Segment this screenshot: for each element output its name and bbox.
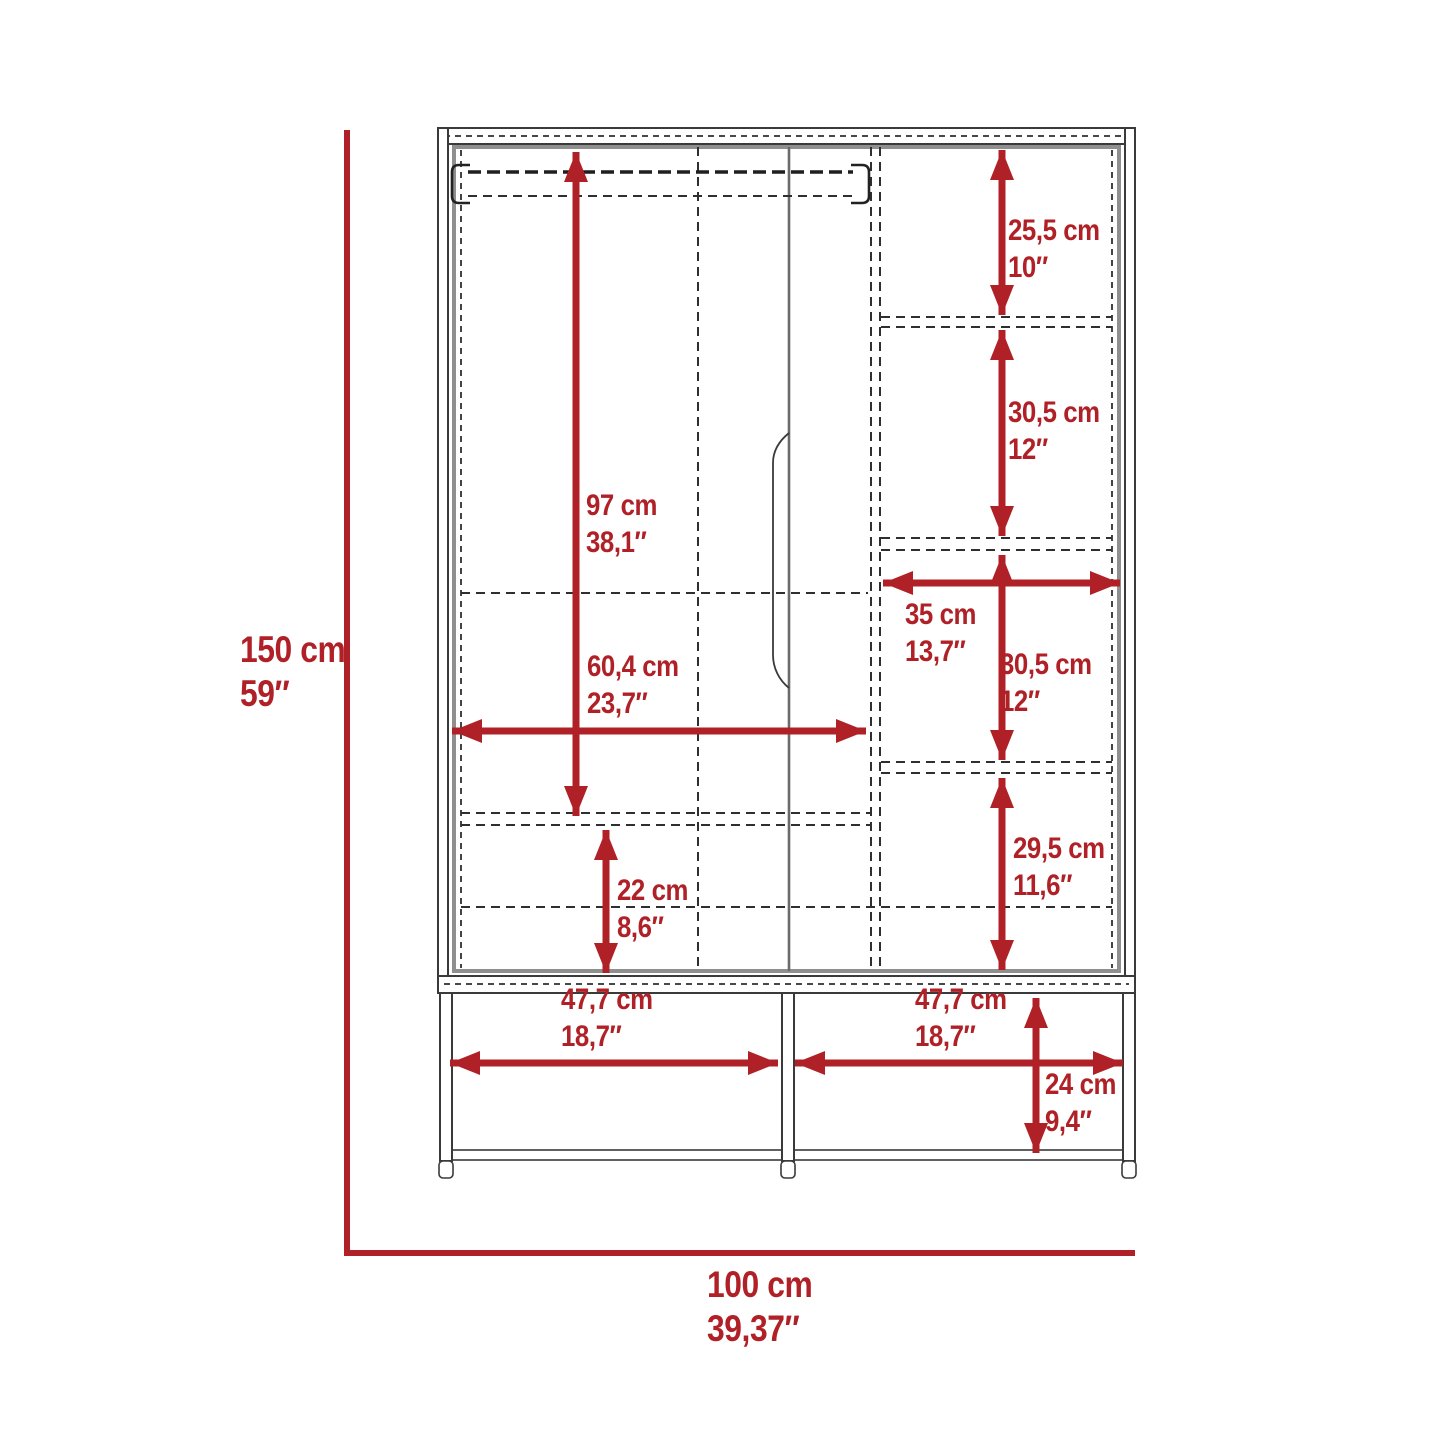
dim-label-shelf-1: 25,5 cm10″: [1008, 212, 1100, 286]
foot-right: [1122, 1161, 1136, 1178]
dim-label-hanging-height: 97 cm38,1″: [586, 487, 657, 561]
leg-center: [782, 993, 794, 1161]
dim-label-base-right-width: 47,7 cm18,7″: [915, 981, 1007, 1055]
dim-label-right-column-width: 35 cm13,7″: [905, 596, 976, 670]
dim-label-left-interior-width: 60,4 cm23,7″: [587, 648, 679, 722]
dimension-diagram: 150 cm59″ 100 cm39,37″ 97 cm38,1″ 60,4 c…: [0, 0, 1445, 1445]
doors: [698, 147, 880, 971]
base-legs: [439, 993, 1136, 1178]
dim-label-lower-drawer-height: 22 cm8,6″: [617, 872, 688, 946]
dim-label-base-left-width: 47,7 cm18,7″: [561, 981, 653, 1055]
foot-center: [781, 1161, 795, 1178]
leg-right: [1123, 993, 1135, 1161]
foot-left: [439, 1161, 453, 1178]
leg-left: [440, 993, 452, 1161]
dim-label-shelf-4: 29,5 cm11,6″: [1013, 830, 1105, 904]
hanging-rod: [452, 165, 869, 203]
dim-label-shelf-2: 30,5 cm12″: [1008, 394, 1100, 468]
dim-label-shelf-3: 30,5 cm12″: [1000, 646, 1092, 720]
dim-label-base-height: 24 cm9,4″: [1045, 1066, 1116, 1140]
dim-label-overall-height: 150 cm59″: [240, 628, 345, 716]
rod-bracket-right: [851, 165, 869, 203]
door-handle: [773, 433, 789, 688]
dim-label-overall-width: 100 cm39,37″: [707, 1263, 812, 1351]
furniture-line-art: [0, 0, 1445, 1445]
